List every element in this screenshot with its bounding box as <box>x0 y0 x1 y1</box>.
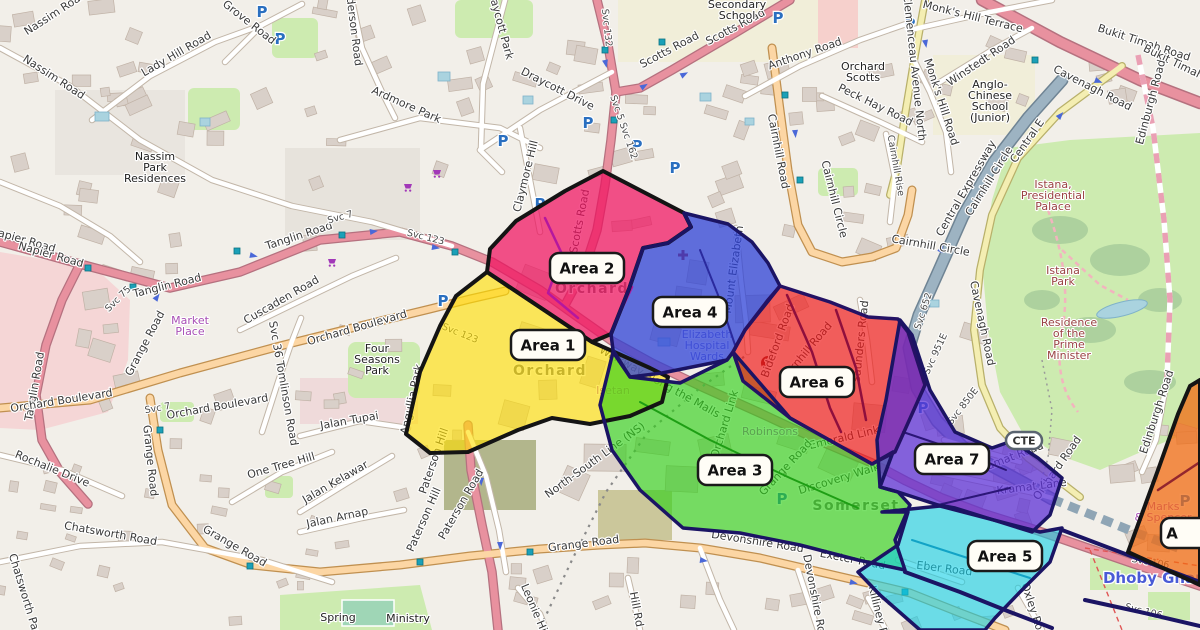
building <box>23 72 38 84</box>
building <box>1109 464 1135 484</box>
building <box>9 481 19 493</box>
map-viewport[interactable]: PPPPPPPPPPPPP Nassim RoadNassim RoadLady… <box>0 0 1200 630</box>
map-label-spring: Spring <box>320 611 356 624</box>
area-label-bubble-area1: Area 1 <box>511 330 585 360</box>
area-label-bubble-area4: Area 4 <box>653 297 727 327</box>
building <box>88 0 115 15</box>
parking-icon: P <box>438 292 449 310</box>
building <box>0 585 6 595</box>
building <box>297 581 303 590</box>
map-label-line: School <box>719 9 756 22</box>
area-label-area7: Area 7 <box>925 451 980 469</box>
bus-stop-icon <box>797 177 803 183</box>
bus-stop-icon <box>234 248 240 254</box>
area-label-area6: Area 6 <box>790 374 845 392</box>
map-label-line: Minister <box>1047 349 1091 362</box>
area-label-bubble-area3: Area 3 <box>698 455 772 485</box>
area-label-area4: Area 4 <box>663 304 718 322</box>
area-label-bubble-area2: Area 2 <box>550 253 624 283</box>
map-label-line: Residences <box>124 172 186 185</box>
building <box>76 329 92 349</box>
map-label-line: Scotts <box>846 71 880 84</box>
parking-icon: P <box>498 132 509 150</box>
building <box>511 564 521 574</box>
building <box>103 323 119 333</box>
building <box>680 595 695 609</box>
building <box>70 506 82 513</box>
bus-stop-icon <box>602 47 608 53</box>
building <box>574 45 598 64</box>
area-label-area5: Area 5 <box>978 548 1033 566</box>
parking-icon: P <box>670 159 681 177</box>
building <box>782 224 796 237</box>
bus-stop-icon <box>417 559 423 565</box>
building <box>802 87 816 101</box>
area-label-area8: A <box>1166 525 1178 543</box>
building <box>79 188 99 203</box>
bus-stop-icon <box>527 549 533 555</box>
map-label-line: Park <box>1051 275 1075 288</box>
building <box>97 565 110 578</box>
map-label-line: (Junior) <box>970 111 1010 124</box>
bus-stop-icon <box>782 92 788 98</box>
building <box>170 439 182 449</box>
area-label-area1: Area 1 <box>521 337 576 355</box>
map-label-istana_park: IstanaPark <box>1046 264 1080 288</box>
building <box>16 531 27 540</box>
bus-stop-icon <box>452 249 458 255</box>
area-label-area2: Area 2 <box>560 260 615 278</box>
building <box>789 112 804 126</box>
bus-stop-icon <box>1032 57 1038 63</box>
building <box>843 186 854 197</box>
building <box>229 616 242 625</box>
map-label-orchard_scotts: OrchardScotts <box>841 60 885 84</box>
building <box>625 94 647 104</box>
cte-shield-label: CTE <box>1012 435 1035 448</box>
building <box>765 598 780 611</box>
bus-stop-icon <box>157 427 163 433</box>
building <box>627 557 639 573</box>
building <box>44 480 58 493</box>
building <box>200 475 212 482</box>
building <box>166 263 178 274</box>
building <box>324 400 339 409</box>
bus-stop-icon <box>339 232 345 238</box>
map-label-line: Place <box>175 325 204 338</box>
bus-stop-icon <box>85 265 91 271</box>
building <box>295 391 311 401</box>
parking-icon: P <box>583 114 594 132</box>
building <box>609 573 623 587</box>
expressway-shield: CTE <box>1006 432 1042 449</box>
area-label-bubble-area7: Area 7 <box>915 444 989 474</box>
building <box>177 121 195 137</box>
map-label-acs: Anglo-ChineseSchool(Junior) <box>968 78 1012 124</box>
area-label-area3: Area 3 <box>708 462 763 480</box>
map-label-ministry: Ministry <box>386 612 430 625</box>
building <box>207 131 224 145</box>
building <box>100 87 110 97</box>
building <box>0 26 11 42</box>
map-label-line: Park <box>365 364 389 377</box>
map-label-market_place: MarketPlace <box>171 314 209 338</box>
building <box>218 488 229 498</box>
map-label-line: Palace <box>1035 200 1071 213</box>
map-canvas[interactable]: PPPPPPPPPPPPP Nassim RoadNassim RoadLady… <box>0 0 1200 630</box>
area-label-bubble-area5: Area 5 <box>968 541 1042 571</box>
building <box>644 106 656 115</box>
area-label-bubble-area6: Area 6 <box>780 367 854 397</box>
parking-icon: P <box>257 3 268 21</box>
parking-icon: P <box>773 9 784 27</box>
area-label-bubble-area8: A <box>1161 518 1200 548</box>
bus-stop-icon <box>247 563 253 569</box>
bus-stop-icon <box>659 39 665 45</box>
building <box>169 233 182 248</box>
